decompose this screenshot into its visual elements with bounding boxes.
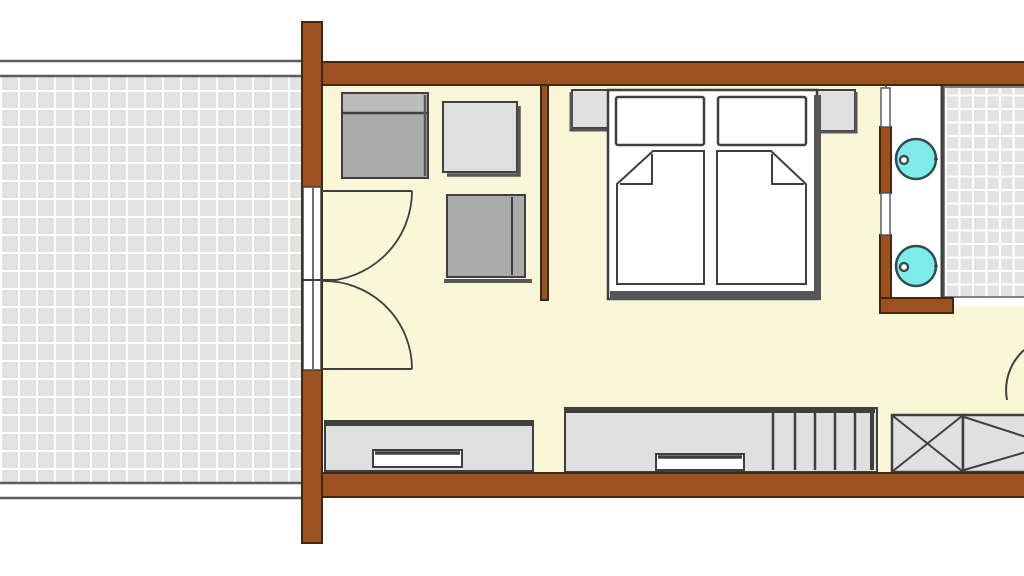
bottom-wall [302,473,1024,497]
bed-group [571,90,856,300]
entry-partition [541,85,548,300]
washbasin-bottom-tap [934,264,938,268]
pillow-left [616,97,704,145]
double-bed [608,90,821,300]
mattress-left [617,151,704,284]
nightstand-left-top [572,90,608,128]
divider-glass-gap-lower [881,193,890,235]
side-table-top [443,102,517,172]
terrace-tile-floor [0,77,302,482]
luggage-rack [963,415,1024,472]
bed-shadow-bottom [610,291,821,300]
wardrobe-dresser [342,93,428,178]
bathroom-divider-upper [880,127,891,193]
wardrobe-dresser-top [343,94,427,112]
washbasin-bottom [896,246,938,286]
luggage-rack-body [963,415,1024,472]
washbasin-top [896,139,938,179]
sideboard-with-stairs [565,408,877,472]
washbasin-top-tap [934,157,938,161]
pillow-right [718,97,806,145]
sideboard-left [325,421,533,471]
shaft-box-x [892,415,963,472]
side-table [443,102,519,175]
divider-glass-gap-upper [881,88,890,127]
bed-shadow-right [814,95,821,295]
bathroom-stub-wall [880,298,953,313]
washbasin-bottom-drain [900,263,908,271]
nightstand-left [571,90,608,130]
mattress-right [717,151,806,284]
terrace [0,61,302,498]
floor-plan-drawing [0,0,1024,576]
top-wall [302,62,1024,85]
bathroom-threshold [945,298,1024,306]
bathroom-tile-floor [944,87,1024,297]
floor-plan-page [0,0,1024,576]
entry-door-frame [303,187,321,370]
bathroom [886,85,1024,308]
armchair [444,195,532,281]
armchair-seat [447,195,525,277]
washbasin-top-drain [900,156,908,164]
